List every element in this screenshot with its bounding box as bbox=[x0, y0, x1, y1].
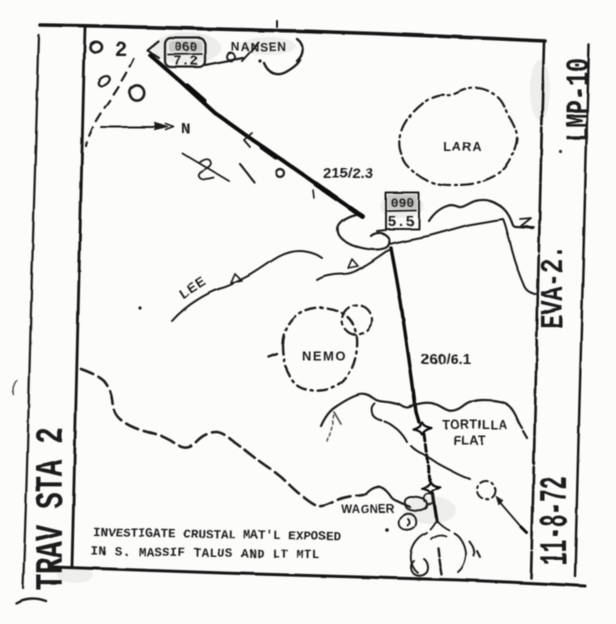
svg-text:WAGNER: WAGNER bbox=[341, 504, 395, 516]
svg-text:215/2.3: 215/2.3 bbox=[323, 165, 373, 182]
svg-text:7.2: 7.2 bbox=[174, 55, 198, 70]
svg-text:TORTILLA: TORTILLA bbox=[442, 418, 508, 432]
svg-text:NEMO: NEMO bbox=[302, 348, 347, 363]
svg-text:2: 2 bbox=[115, 40, 128, 63]
svg-text:260/6.1: 260/6.1 bbox=[421, 351, 471, 368]
svg-text:FLAT: FLAT bbox=[453, 434, 486, 448]
svg-text:NANSEN: NANSEN bbox=[231, 40, 286, 54]
svg-text:EVA-2.: EVA-2. bbox=[537, 245, 572, 328]
svg-text:090: 090 bbox=[391, 196, 415, 211]
svg-text:N: N bbox=[181, 121, 190, 138]
svg-text:LMP-10: LMP-10 bbox=[561, 58, 599, 141]
svg-text:TRAV STA 2: TRAV STA 2 bbox=[31, 428, 75, 591]
svg-text:060: 060 bbox=[175, 41, 198, 55]
svg-text:5.5: 5.5 bbox=[387, 214, 414, 231]
svg-text:LARA: LARA bbox=[443, 140, 483, 154]
svg-text:11-8-72: 11-8-72 bbox=[535, 477, 578, 565]
